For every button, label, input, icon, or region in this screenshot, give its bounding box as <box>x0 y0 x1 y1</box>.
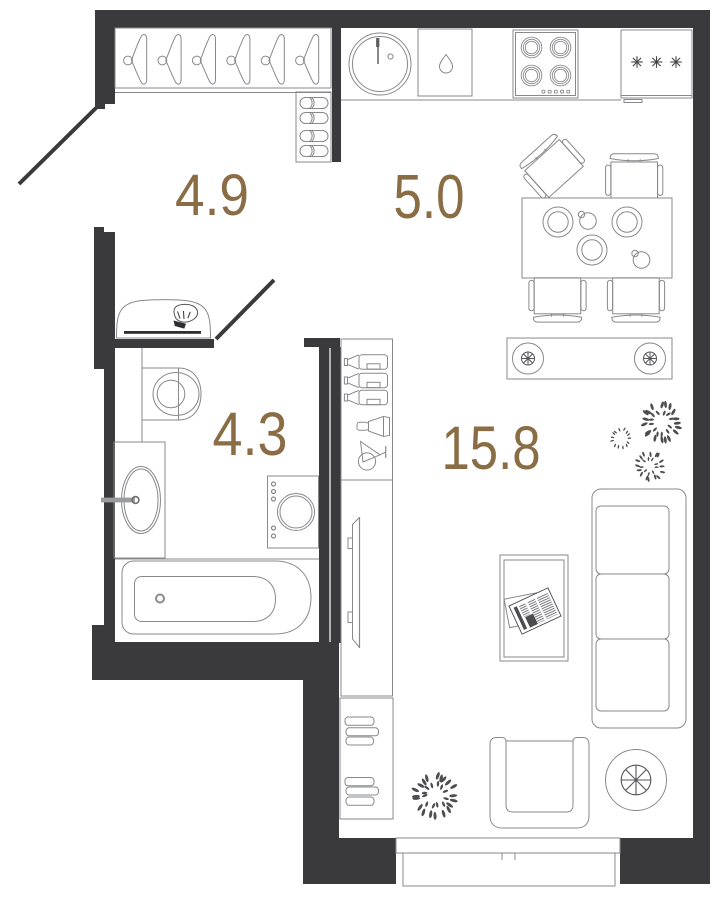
svg-text:4.9: 4.9 <box>175 163 249 228</box>
svg-text:4.3: 4.3 <box>213 400 288 468</box>
svg-text:15.8: 15.8 <box>442 414 541 482</box>
svg-text:5.0: 5.0 <box>394 163 465 232</box>
